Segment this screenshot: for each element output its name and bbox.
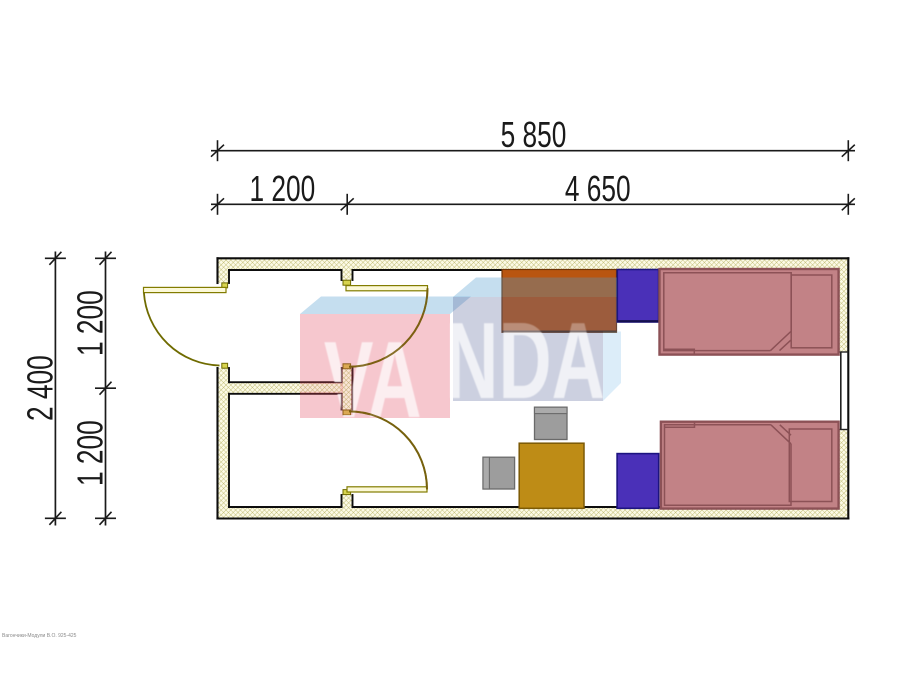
svg-text:1 200: 1 200 [249,168,315,209]
svg-text:2 400: 2 400 [19,355,60,421]
svg-text:4 650: 4 650 [565,168,631,209]
svg-text:1 200: 1 200 [69,290,110,356]
svg-text:1 200: 1 200 [69,420,110,486]
svg-text:VA: VA [324,319,422,441]
svg-text:Вагончики-Модули В.О. 925-425: Вагончики-Модули В.О. 925-425 [2,633,77,639]
svg-text:5 850: 5 850 [501,114,567,155]
